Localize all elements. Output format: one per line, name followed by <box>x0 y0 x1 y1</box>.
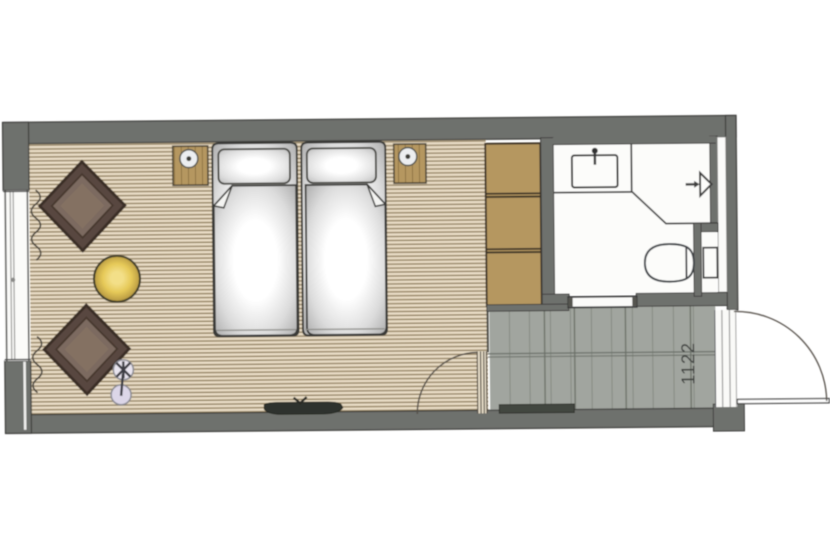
svg-text:1122: 1122 <box>678 342 698 385</box>
